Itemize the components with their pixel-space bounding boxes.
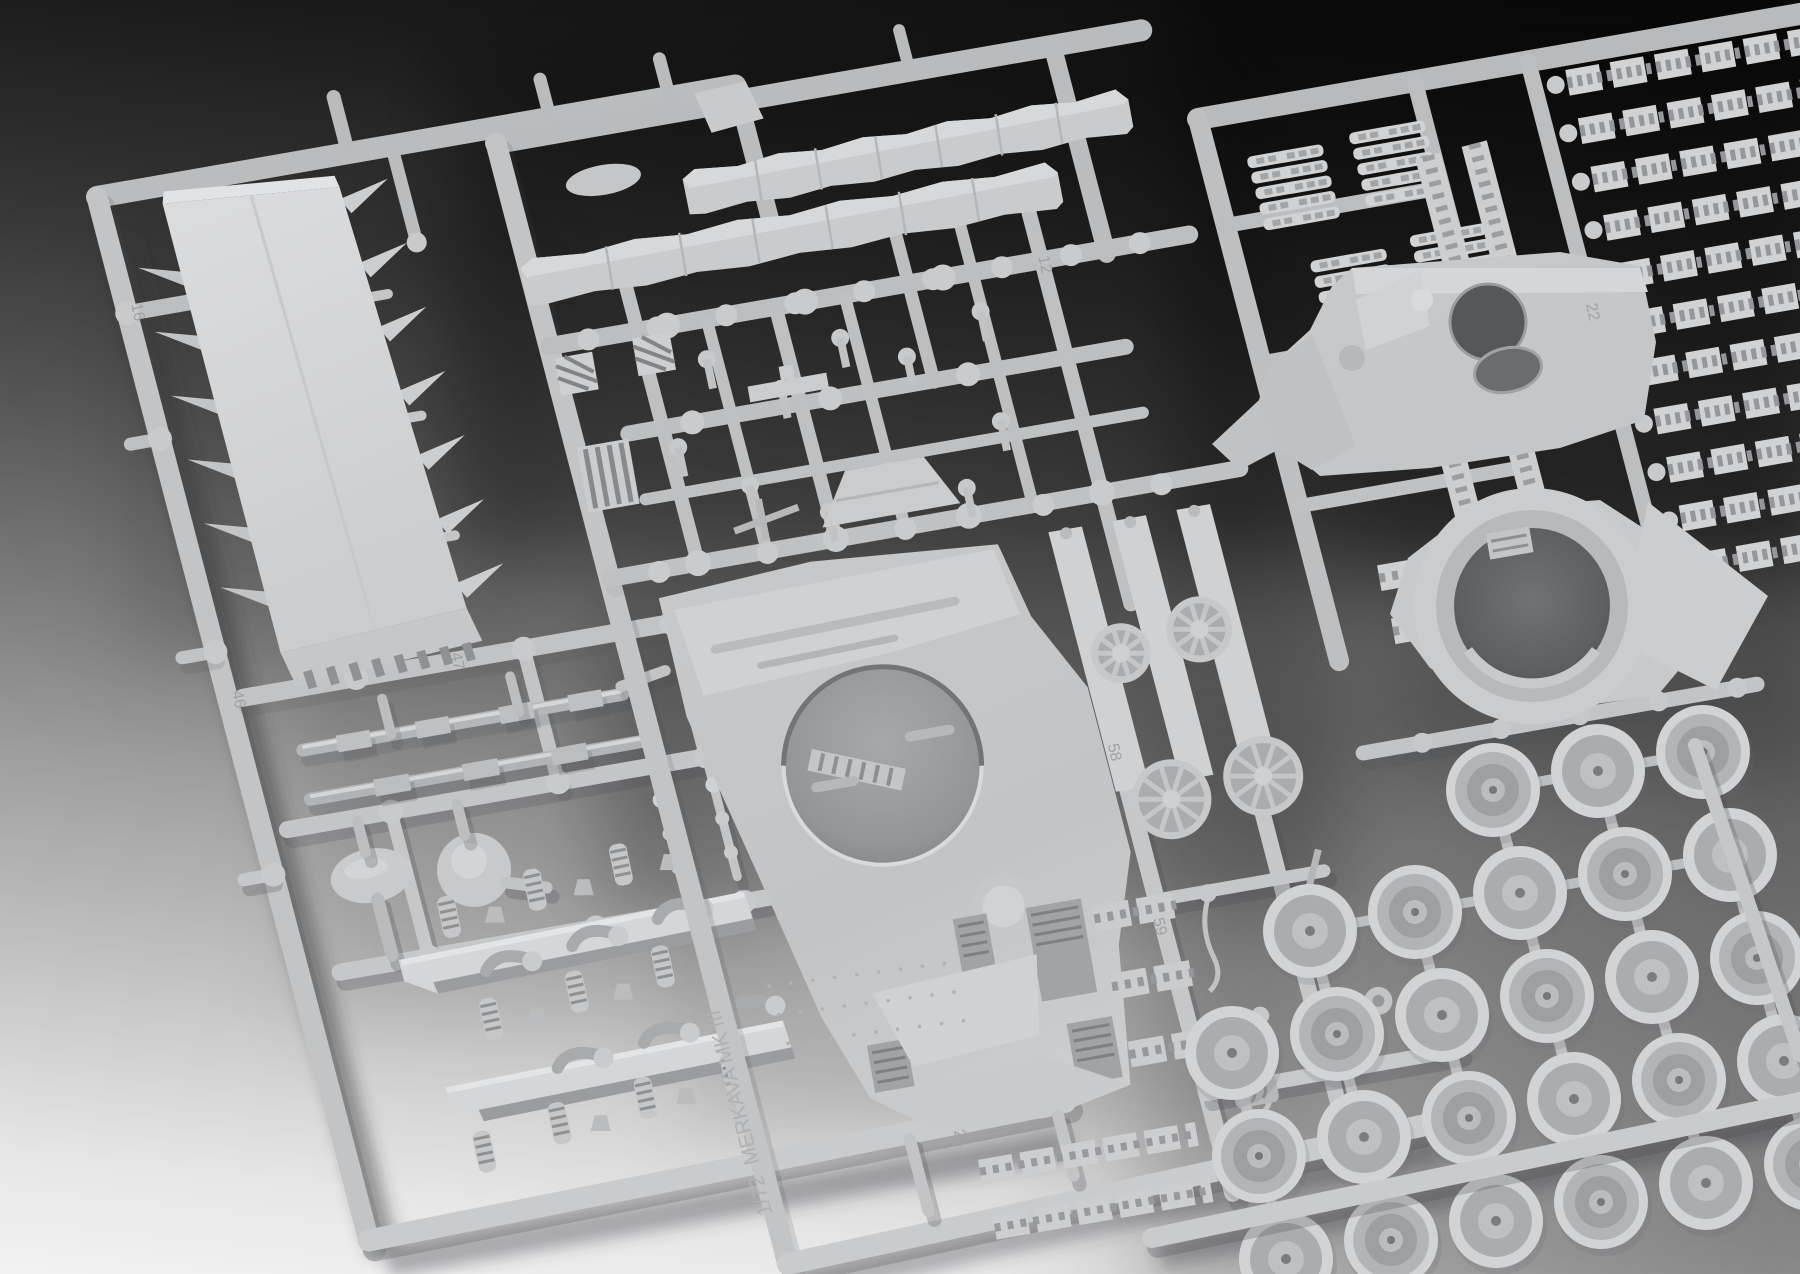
svg-text:47: 47 [447, 651, 467, 672]
svg-text:24: 24 [950, 1128, 970, 1149]
svg-text:22: 22 [1582, 301, 1602, 322]
svg-text:16: 16 [127, 302, 147, 323]
svg-text:58: 58 [1104, 742, 1124, 763]
svg-text:59: 59 [1149, 916, 1169, 937]
svg-text:46: 46 [228, 689, 248, 710]
svg-text:12: 12 [1034, 254, 1054, 275]
